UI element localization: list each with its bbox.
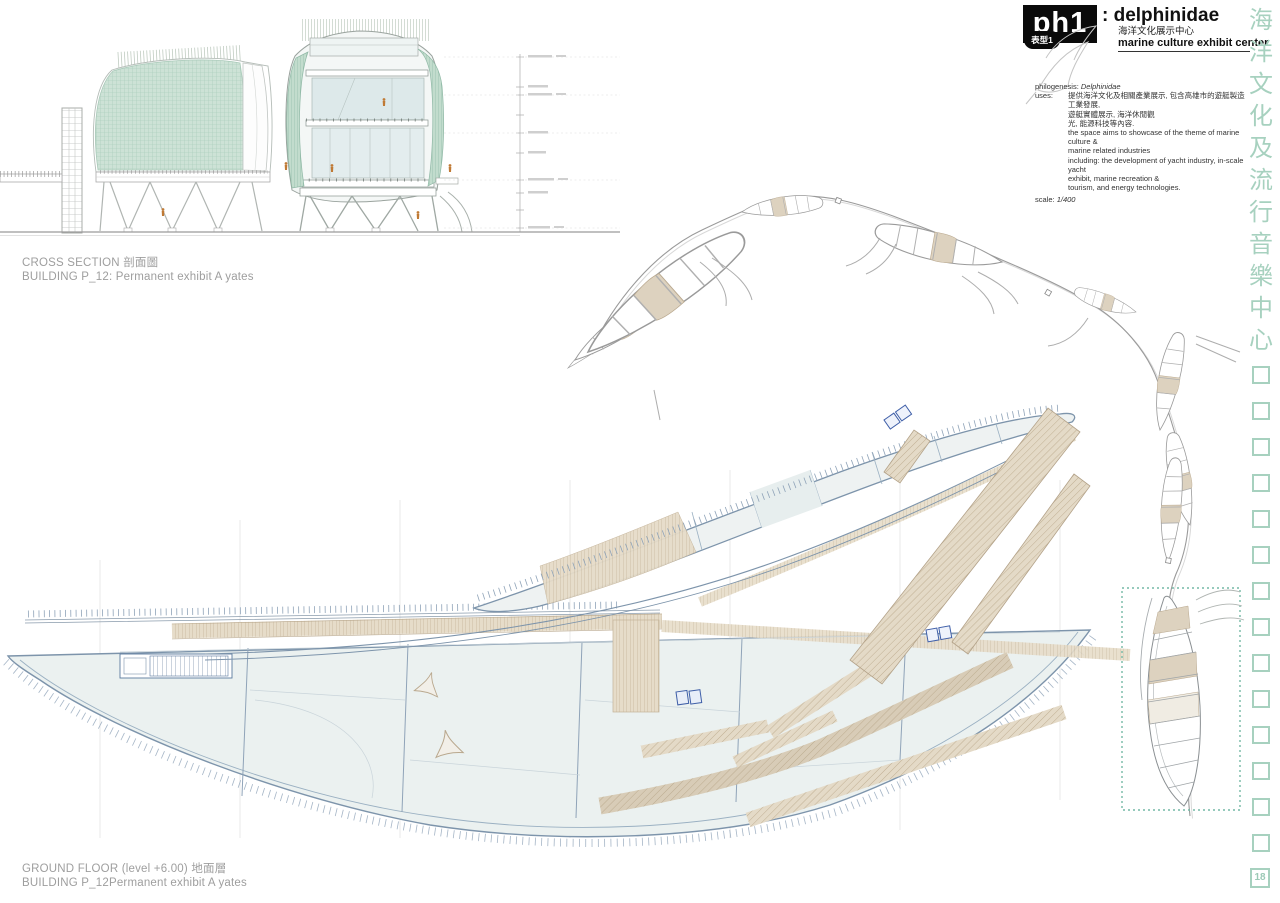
vertical-char: 心 <box>1246 324 1276 356</box>
vertical-char: 文 <box>1246 68 1276 100</box>
placeholder-square <box>1252 366 1270 384</box>
philogenesis-row: philogenesis: Delphinidae <box>1035 82 1251 91</box>
placeholder-square <box>1252 654 1270 672</box>
vertical-char: 海 <box>1246 4 1276 36</box>
placeholder-square <box>1252 690 1270 708</box>
uses-label: uses: <box>1035 91 1068 192</box>
placeholder-square <box>1252 474 1270 492</box>
placeholder-square <box>1252 834 1270 852</box>
placeholder-square <box>1252 438 1270 456</box>
vertical-char: 流 <box>1246 164 1276 196</box>
title-block: : delphinidae 海洋文化展示中心 marine culture ex… <box>1102 6 1268 49</box>
cross-section-caption-line2: BUILDING P_12: Permanent exhibit A yates <box>22 270 254 284</box>
highlight-box <box>1122 588 1244 810</box>
vertical-char: 及 <box>1246 132 1276 164</box>
placeholder-square <box>1252 618 1270 636</box>
placeholder-square <box>1252 582 1270 600</box>
placeholder-square <box>1252 546 1270 564</box>
vertical-char: 洋 <box>1246 36 1276 68</box>
ground-floor-caption-line2: BUILDING P_12Permanent exhibit A yates <box>22 876 247 890</box>
vertical-title-column: 海 洋 文 化 及 流 行 音 樂 中 心 <box>1246 4 1276 870</box>
cross-section-caption: CROSS SECTION 剖面圖 BUILDING P_12: Permane… <box>22 256 254 284</box>
placeholder-square <box>1252 726 1270 744</box>
vertical-char: 樂 <box>1246 260 1276 292</box>
placeholder-square <box>1252 798 1270 816</box>
project-name: : delphinidae <box>1102 6 1268 26</box>
uses-text: 提供海洋文化及相關產業展示, 包含高雄市的遊艇製造工業發展, 遊艇實體展示, 海… <box>1068 91 1251 192</box>
title-rule <box>1118 51 1250 52</box>
scale-row: scale: 1/400 <box>1035 195 1251 204</box>
ground-floor-caption-line1: GROUND FLOOR (level +6.00) 地面層 <box>22 862 247 876</box>
placeholder-squares <box>1246 366 1276 852</box>
scale-value: 1/400 <box>1057 195 1076 204</box>
project-description: philogenesis: Delphinidae uses: 提供海洋文化及相… <box>1035 82 1251 205</box>
uses-row: uses: 提供海洋文化及相關產業展示, 包含高雄市的遊艇製造工業發展, 遊艇實… <box>1035 91 1251 192</box>
philogenesis-value: Delphinidae <box>1081 82 1121 91</box>
cross-section-caption-line1: CROSS SECTION 剖面圖 <box>22 256 254 270</box>
vertical-char: 音 <box>1246 228 1276 260</box>
placeholder-square <box>1252 762 1270 780</box>
placeholder-square <box>1252 402 1270 420</box>
ground-floor-caption: GROUND FLOOR (level +6.00) 地面層 BUILDING … <box>22 862 247 890</box>
vertical-char: 中 <box>1246 292 1276 324</box>
placeholder-square <box>1252 510 1270 528</box>
vertical-char: 行 <box>1246 196 1276 228</box>
vertical-char: 化 <box>1246 100 1276 132</box>
page-number: 18 <box>1250 868 1270 888</box>
